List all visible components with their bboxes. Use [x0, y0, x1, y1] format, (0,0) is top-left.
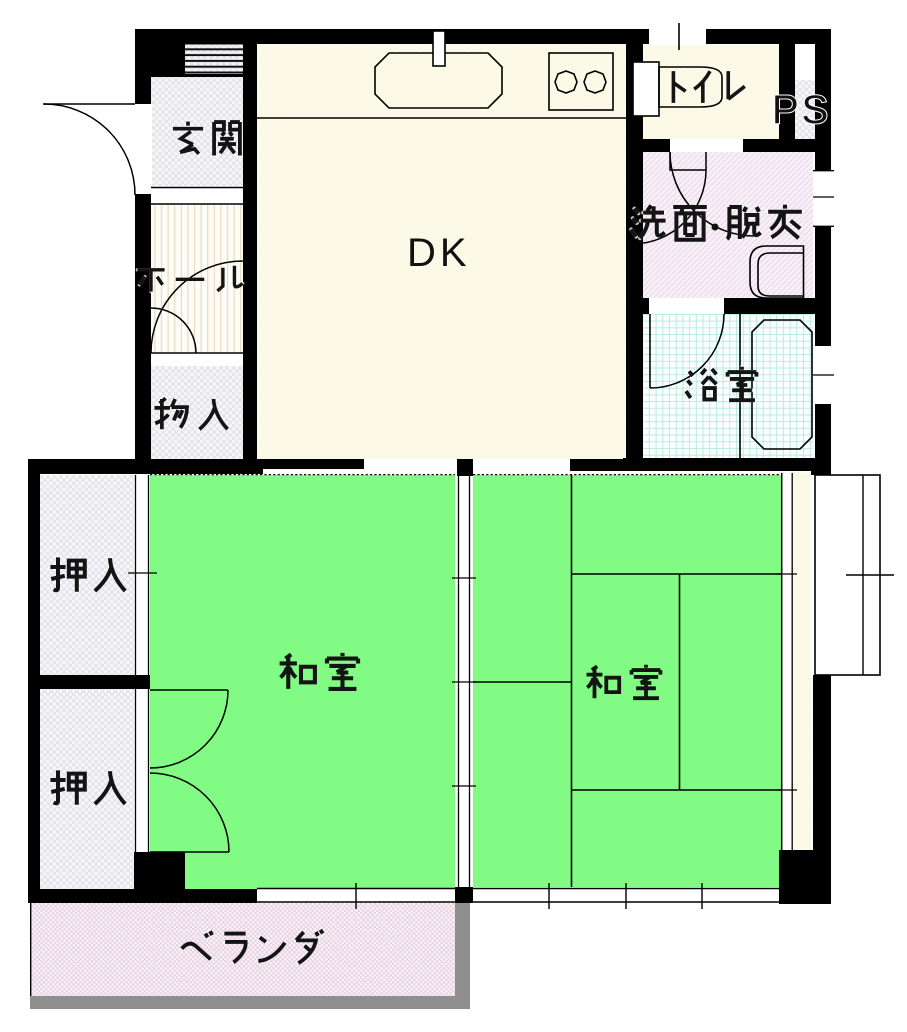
svg-text:DK: DK [407, 231, 471, 275]
svg-text:PS: PS [772, 88, 831, 132]
